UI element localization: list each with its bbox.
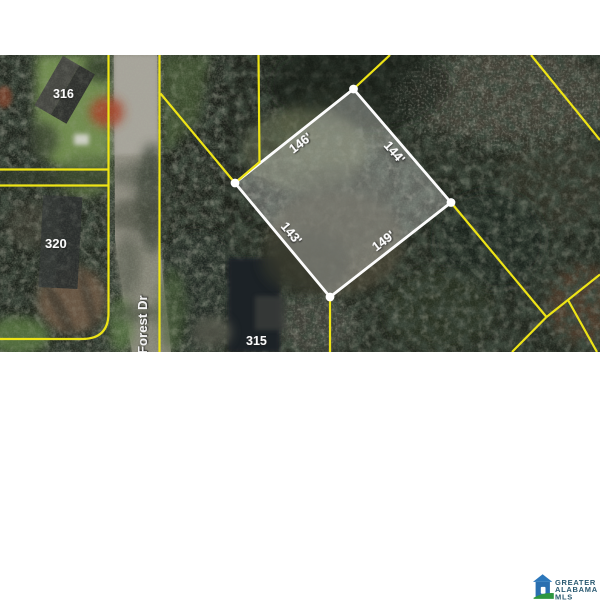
svg-text:316: 316 [53,87,74,101]
svg-text:320: 320 [45,236,67,251]
svg-text:Forest Dr: Forest Dr [135,295,150,354]
svg-text:MLS: MLS [555,592,573,600]
svg-text:315: 315 [246,334,267,348]
